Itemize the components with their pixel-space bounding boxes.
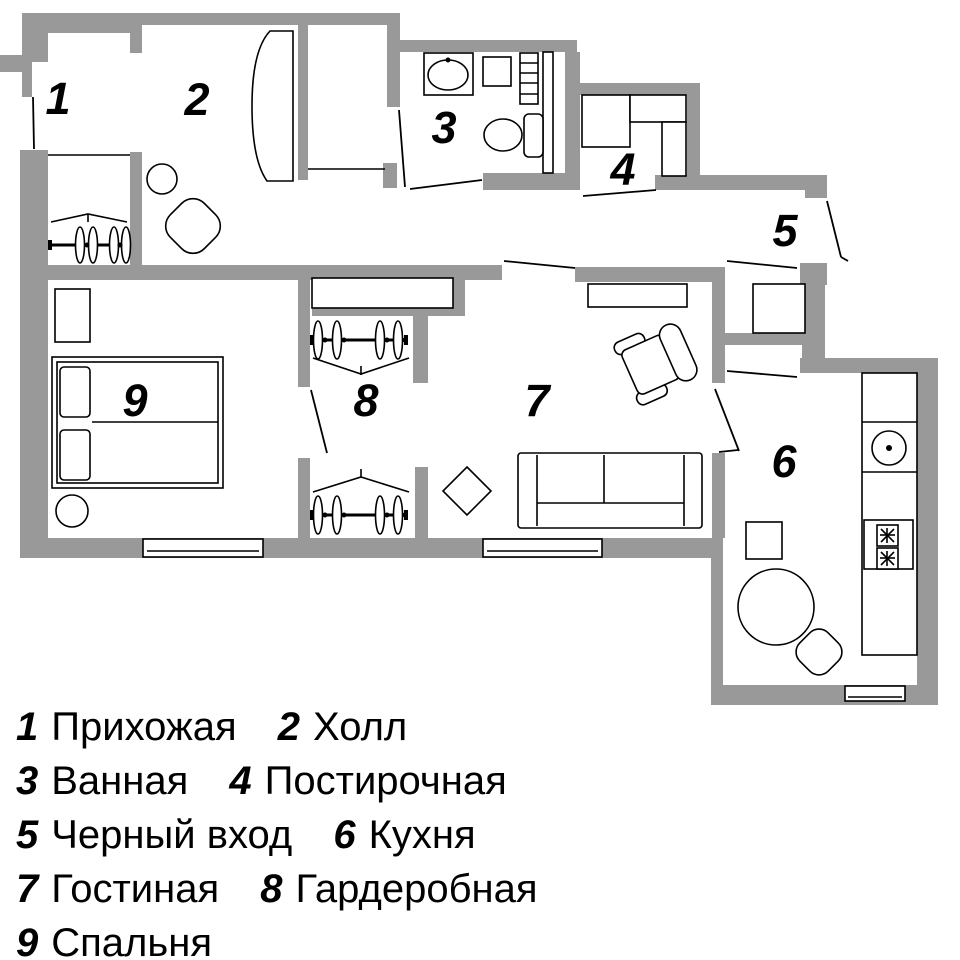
room-label-4: 4 (609, 144, 635, 195)
room-label-2: 2 (183, 74, 209, 125)
toilet (484, 114, 543, 157)
window-bedroom (143, 539, 263, 557)
entrance-door-leaf (33, 97, 34, 149)
bathroom-door-swing (410, 180, 482, 189)
ottoman-diamond (443, 467, 491, 515)
vestibule-door-leaf (727, 261, 797, 268)
room-label-8: 8 (353, 375, 378, 426)
hall-lamp (147, 164, 177, 194)
legend-row: 3Ванная 4Постирочная (16, 754, 946, 808)
legend-item: 2Холл (278, 705, 408, 749)
stove (864, 520, 913, 569)
floor-plan-page: 1 2 3 4 5 6 7 8 9 1Прихожая 2Холл 3Ванна… (0, 0, 960, 960)
wardrobe-rail-bottom (310, 469, 409, 534)
hall-to-living-door-leaf (504, 261, 575, 268)
legend-room-number: 4 (229, 759, 251, 803)
legend-item: 9Спальня (16, 921, 212, 960)
legend-room-name: Прихожая (51, 705, 236, 749)
legend-room-number: 7 (16, 867, 38, 911)
legend-row: 9Спальня (16, 916, 946, 960)
hall-closet (48, 155, 131, 263)
legend-room-name: Кухня (369, 813, 476, 857)
room-label-1: 1 (45, 73, 70, 124)
washing-machine (483, 57, 511, 86)
window-kitchen (845, 686, 905, 701)
legend-room-number: 5 (16, 813, 38, 857)
legend-item: 8Гардеробная (260, 867, 537, 911)
legend: 1Прихожая 2Холл 3Ванная 4Постирочная 5Че… (16, 700, 946, 960)
hall-wardrobe (252, 31, 293, 181)
legend-room-number: 2 (278, 705, 300, 749)
armchair (612, 317, 702, 407)
bathroom-sink (424, 53, 473, 95)
nightstand (55, 289, 90, 342)
window-living-room (483, 539, 602, 557)
sofa (518, 453, 702, 528)
kitchen-door-leaf (727, 371, 797, 377)
kitchen-counter (862, 373, 917, 655)
bathroom-partition (543, 52, 553, 173)
kitchen-stool (746, 522, 782, 559)
bedroom-to-wardrobe-door-leaf (311, 390, 327, 453)
room-label-7: 7 (524, 375, 551, 426)
room-label-5: 5 (772, 205, 798, 256)
back-entrance-door-leaf (827, 201, 841, 257)
legend-row: 1Прихожая 2Холл (16, 700, 946, 754)
living-to-kitchen-door-leaf (715, 389, 739, 451)
legend-room-name: Гостиная (51, 867, 219, 911)
legend-row: 7Гостиная 8Гардеробная (16, 862, 946, 916)
room-label-3: 3 (431, 102, 456, 153)
room-label-9: 9 (122, 375, 147, 426)
legend-room-number: 1 (16, 705, 38, 749)
legend-room-number: 3 (16, 759, 38, 803)
room-label-6: 6 (771, 436, 797, 487)
kitchen-table (738, 569, 814, 645)
legend-item: 1Прихожая (16, 705, 237, 749)
legend-item: 6Кухня (333, 813, 475, 857)
legend-room-name: Спальня (51, 921, 212, 960)
legend-room-number: 9 (16, 921, 38, 960)
legend-room-number: 6 (333, 813, 355, 857)
hall-pouf (159, 192, 227, 260)
bathroom-door-leaf (399, 110, 405, 187)
bedroom-stool (56, 495, 88, 527)
legend-item: 5Черный вход (16, 813, 292, 857)
wardrobe-cabinet (312, 278, 453, 308)
vestibule-storage (753, 284, 805, 333)
kitchen-sink (872, 431, 906, 465)
legend-item: 4Постирочная (229, 759, 506, 803)
living-shelf (588, 284, 687, 307)
legend-room-name: Холл (313, 705, 407, 749)
bathroom-shelf (520, 53, 538, 104)
legend-room-number: 8 (260, 867, 282, 911)
legend-room-name: Ванная (51, 759, 188, 803)
legend-item: 3Ванная (16, 759, 188, 803)
wardrobe-rail-top (310, 321, 409, 375)
legend-room-name: Черный вход (51, 813, 292, 857)
legend-row: 5Черный вход 6Кухня (16, 808, 946, 862)
legend-room-name: Постирочная (265, 759, 507, 803)
legend-room-name: Гардеробная (296, 867, 538, 911)
legend-item: 7Гостиная (16, 867, 219, 911)
